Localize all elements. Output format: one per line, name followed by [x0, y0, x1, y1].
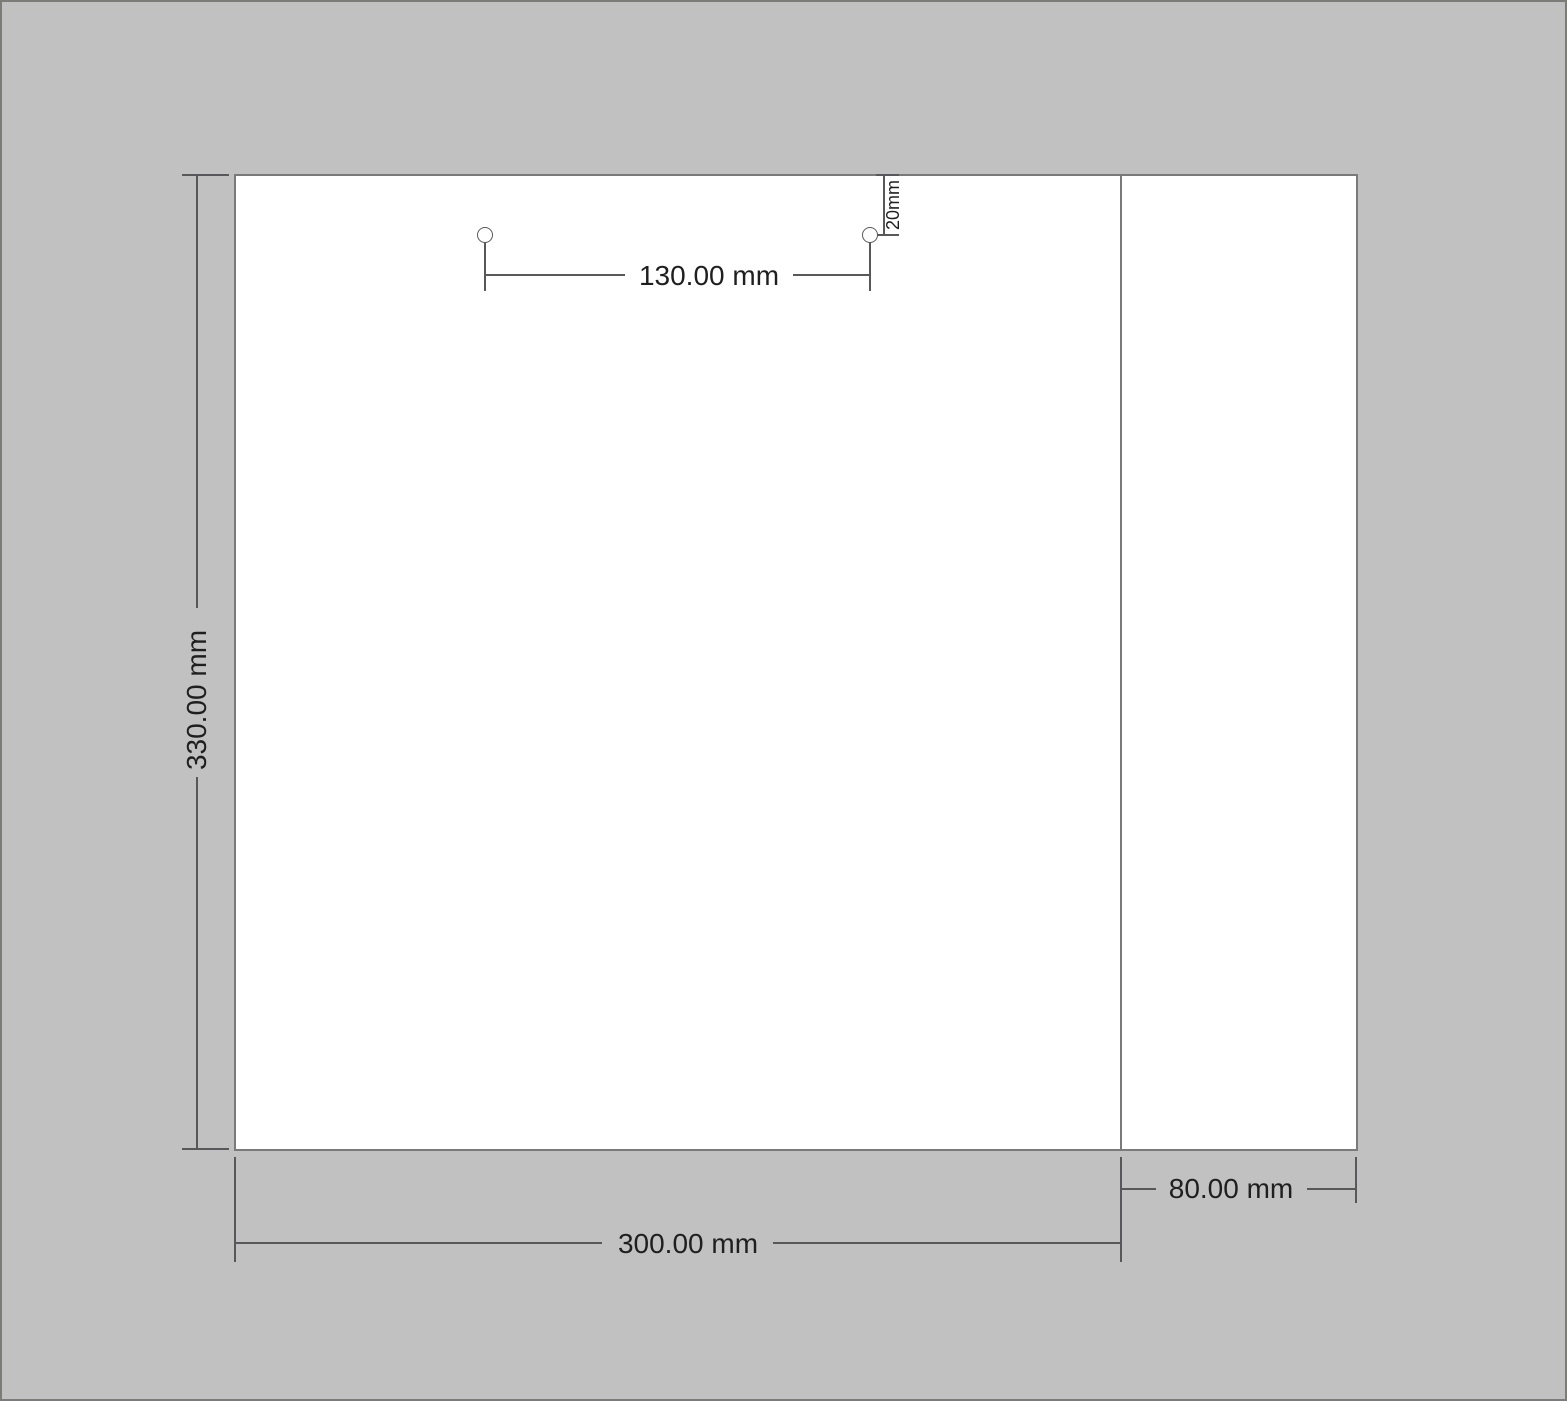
dim-flap-width-tick-right [1355, 1157, 1357, 1203]
dim-hole-spacing-line-left [485, 274, 625, 276]
dim-height-label: 330.00 mm [183, 630, 211, 770]
dim-flap-width-label: 80.00 mm [1169, 1175, 1294, 1203]
hole-left [477, 227, 493, 243]
dim-width-line-left [235, 1242, 602, 1244]
hole-right [862, 227, 878, 243]
dim-flap-width-line-right [1307, 1188, 1357, 1190]
panel-outline [234, 174, 1358, 1151]
dim-width-ext-left [234, 1157, 236, 1262]
dim-height-line-lower [196, 777, 198, 1150]
dim-flap-width-line-left [1121, 1188, 1156, 1190]
dim-height-tick-top [182, 174, 229, 176]
dim-hole-offset-label: 20mm [884, 180, 902, 230]
dim-width-label: 300.00 mm [618, 1230, 758, 1258]
dim-hole-offset-tick-bottom [877, 234, 899, 236]
dim-hole-spacing-ext-right [869, 243, 871, 291]
dim-height-line-upper [196, 175, 198, 608]
dim-width-line-right [773, 1242, 1121, 1244]
dim-hole-spacing-line-right [793, 274, 870, 276]
dim-hole-spacing-label: 130.00 mm [639, 262, 779, 290]
dim-hole-offset-tick-top [876, 174, 899, 176]
fold-line [1120, 176, 1122, 1149]
dim-height-tick-bottom [182, 1148, 229, 1150]
drawing-canvas: 330.00 mm 130.00 mm 20mm 300.00 mm 80.00… [0, 0, 1567, 1401]
dim-width-ext-right [1120, 1157, 1122, 1262]
dim-hole-spacing-ext-left [484, 243, 486, 291]
